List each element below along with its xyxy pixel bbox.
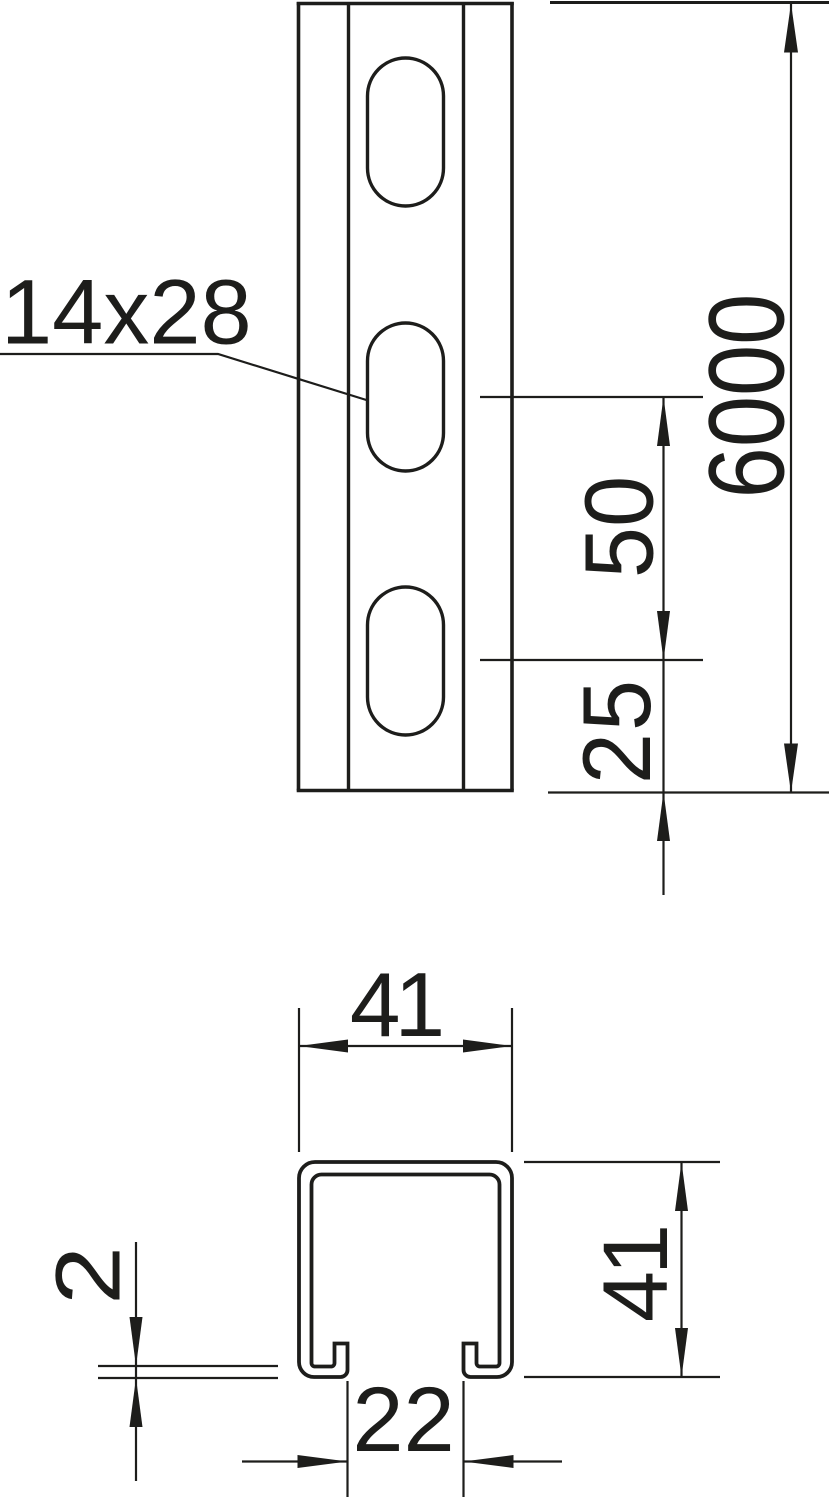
- svg-text:22: 22: [352, 1369, 454, 1471]
- svg-text:41: 41: [585, 1228, 687, 1322]
- svg-text:50: 50: [565, 476, 674, 578]
- svg-text:14x28: 14x28: [1, 262, 252, 364]
- svg-text:25: 25: [563, 678, 671, 784]
- svg-text:41: 41: [350, 955, 442, 1056]
- svg-text:6000: 6000: [687, 294, 807, 499]
- svg-text:2: 2: [37, 1246, 140, 1305]
